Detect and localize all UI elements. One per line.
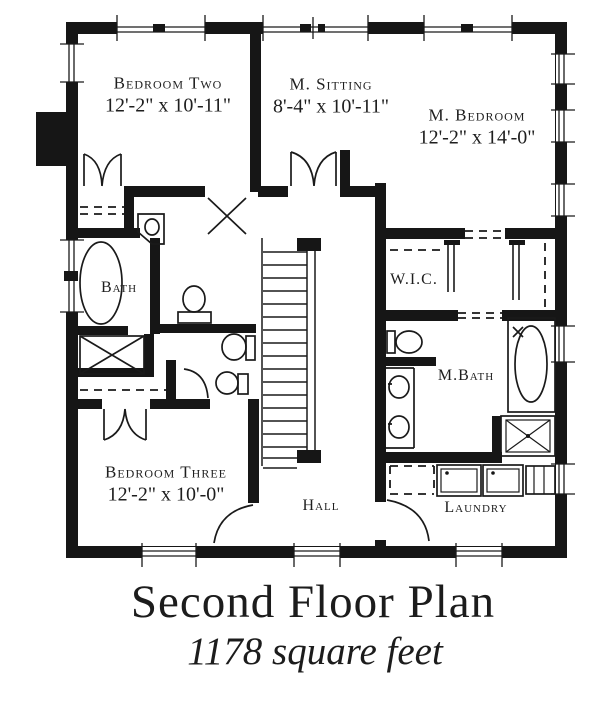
wall-bed3-hall	[248, 399, 259, 503]
window-right-2	[551, 110, 575, 142]
room-label-hall: Hall	[303, 498, 340, 514]
room-dims: 12'-2" x 10'-11"	[105, 95, 231, 118]
washer	[437, 465, 481, 496]
wall-bath-mid	[150, 238, 160, 334]
wall-wic-bottom-b	[502, 310, 555, 321]
room-name: Laundry	[444, 500, 507, 516]
wall-hall-top-right	[345, 186, 375, 197]
window-left-1	[60, 44, 84, 82]
room-name: Bath	[101, 280, 137, 296]
wall-bed2-bottom	[124, 186, 205, 197]
wall-hall-right-stub	[375, 540, 386, 550]
room-name: Bedroom Two	[105, 75, 231, 92]
window-right-3	[551, 184, 575, 216]
wall-mbedroom-bottom-a	[386, 228, 465, 239]
room-dims: 8'-4" x 10'-11"	[273, 96, 389, 119]
room-label-laundry: Laundry	[444, 500, 507, 516]
french-doors-m-sitting	[291, 152, 336, 186]
stair-treads	[263, 252, 307, 468]
opening-mbedroom-wic	[465, 231, 505, 238]
plan-square-footage: 1178 square feet	[30, 631, 600, 674]
window-top-1	[117, 15, 205, 41]
stair-newel-top	[297, 238, 321, 251]
chimney	[36, 112, 68, 166]
room-name: M. Sitting	[273, 76, 389, 93]
room-name: M. Bedroom	[419, 107, 536, 124]
room-label-m-bedroom: M. Bedroom 12'-2" x 14'-0"	[419, 107, 536, 150]
closet-rod-bed2	[80, 207, 124, 214]
double-vanity	[386, 368, 414, 448]
room-label-bath: Bath	[101, 280, 137, 296]
staircase	[262, 238, 321, 468]
wall-mbedroom-bottom-b	[505, 228, 555, 239]
room-name: Hall	[303, 498, 340, 514]
wall-hall-right	[375, 183, 386, 502]
window-top-2	[263, 15, 368, 41]
wall-mbath-nook	[386, 357, 436, 366]
toilet	[216, 372, 248, 394]
room-label-m-bath: M.Bath	[438, 368, 494, 384]
toilet	[178, 286, 211, 323]
double-door-bath-vestibule	[208, 198, 246, 234]
wall-bed2-sitting	[250, 31, 261, 192]
opening-wic-mbath	[458, 313, 502, 318]
wall-wc-mid	[158, 324, 256, 333]
toilet	[222, 334, 255, 360]
wic-hanging-rods	[444, 240, 525, 300]
wall-wic-bottom-a	[386, 310, 458, 321]
room-label-bedroom-two: Bedroom Two 12'-2" x 10'-11"	[105, 75, 231, 118]
wall-closet3-bottom-b	[150, 399, 210, 409]
wall-closet3-bottom-a	[78, 399, 102, 409]
door-arc-bedroom-three	[214, 505, 253, 543]
door-arc-wc	[184, 369, 208, 398]
window-top-3	[424, 15, 512, 41]
room-dims: 12'-2" x 10'-0"	[105, 484, 227, 507]
room-name: Bedroom Three	[105, 464, 227, 481]
stair-newel-bottom	[297, 450, 321, 463]
room-label-bedroom-three: Bedroom Three 12'-2" x 10'-0"	[105, 464, 227, 507]
wall-bath-top	[78, 228, 140, 238]
bathtub	[508, 318, 555, 412]
room-dims: 12'-2" x 14'-0"	[419, 127, 536, 150]
laundry-cabinet	[526, 466, 555, 494]
title-block: Second Floor Plan 1178 square feet	[0, 578, 600, 674]
laundry-counter-dash	[390, 466, 434, 494]
wall-laundry-top	[386, 452, 502, 463]
wall-shower2-left	[492, 416, 501, 457]
stair-rail	[307, 240, 315, 452]
wall-hall-top-left	[258, 186, 288, 197]
room-label-wic: W.I.C.	[390, 272, 438, 288]
room-label-m-sitting: M. Sitting 8'-4" x 10'-11"	[273, 76, 389, 119]
bifold-doors-bed2-closet	[84, 154, 121, 186]
wall-bath-bottom	[78, 326, 128, 335]
plan-title: Second Floor Plan	[26, 578, 600, 627]
toilet	[387, 331, 422, 353]
bifold-doors-bed3-closet	[104, 409, 146, 440]
shower	[501, 416, 555, 456]
floor-plan-page: Bedroom Two 12'-2" x 10'-11" M. Sitting …	[0, 0, 600, 705]
window-right-1	[551, 54, 575, 84]
door-arc-laundry	[387, 500, 429, 541]
dryer	[483, 465, 523, 496]
room-name: W.I.C.	[390, 272, 438, 288]
room-name: M.Bath	[438, 368, 494, 384]
